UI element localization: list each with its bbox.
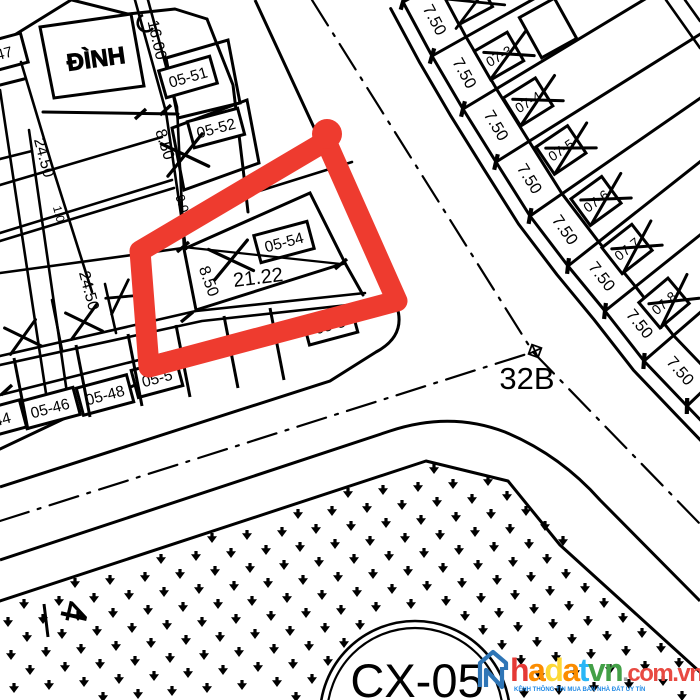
- svg-text:CX-05: CX-05: [350, 654, 483, 700]
- svg-text:KÊNH THÔNG TIN MUA BÁN NHÀ ĐẤT: KÊNH THÔNG TIN MUA BÁN NHÀ ĐẤT UY TÍN: [514, 685, 645, 693]
- svg-text:32B: 32B: [499, 361, 554, 396]
